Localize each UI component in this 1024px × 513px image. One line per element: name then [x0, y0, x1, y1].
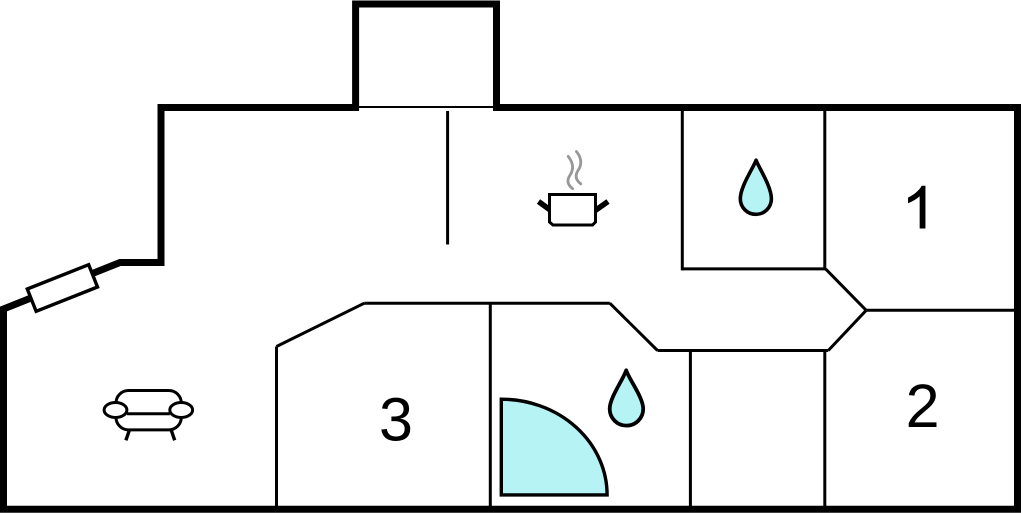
- svg-text:3: 3: [379, 385, 413, 453]
- svg-text:2: 2: [906, 372, 940, 440]
